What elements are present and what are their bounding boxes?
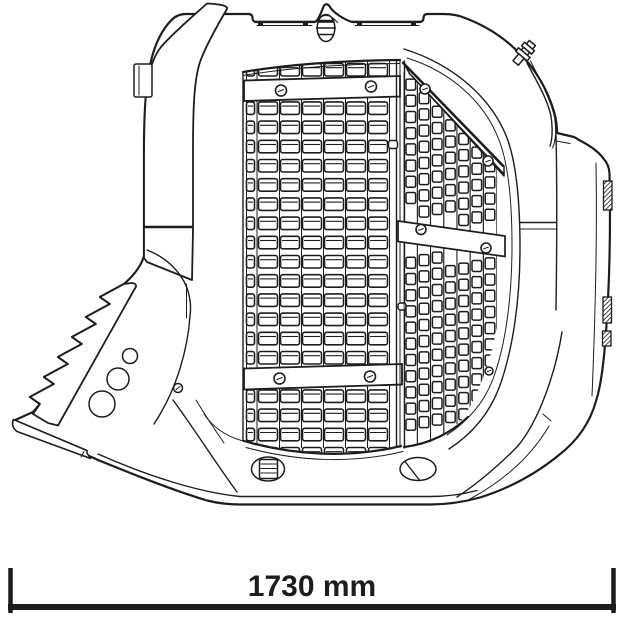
hinge-pin-block-bottom — [603, 331, 612, 346]
dimension-label: 1730 mm — [248, 570, 376, 603]
gusset-hole-small — [123, 349, 138, 364]
arm-bracket-tab — [134, 64, 152, 97]
bucket-technical-drawing: 1730 mm — [0, 0, 624, 622]
gusset-hole-large — [89, 391, 115, 417]
hinge-pin-block-upper — [604, 181, 613, 210]
dimension-annotation: 1730 mm — [8, 568, 616, 613]
drawing-canvas: 1730 mm — [0, 0, 624, 622]
gusset-hole-medium — [107, 368, 129, 390]
hinge-pin-block-lower — [603, 297, 612, 323]
